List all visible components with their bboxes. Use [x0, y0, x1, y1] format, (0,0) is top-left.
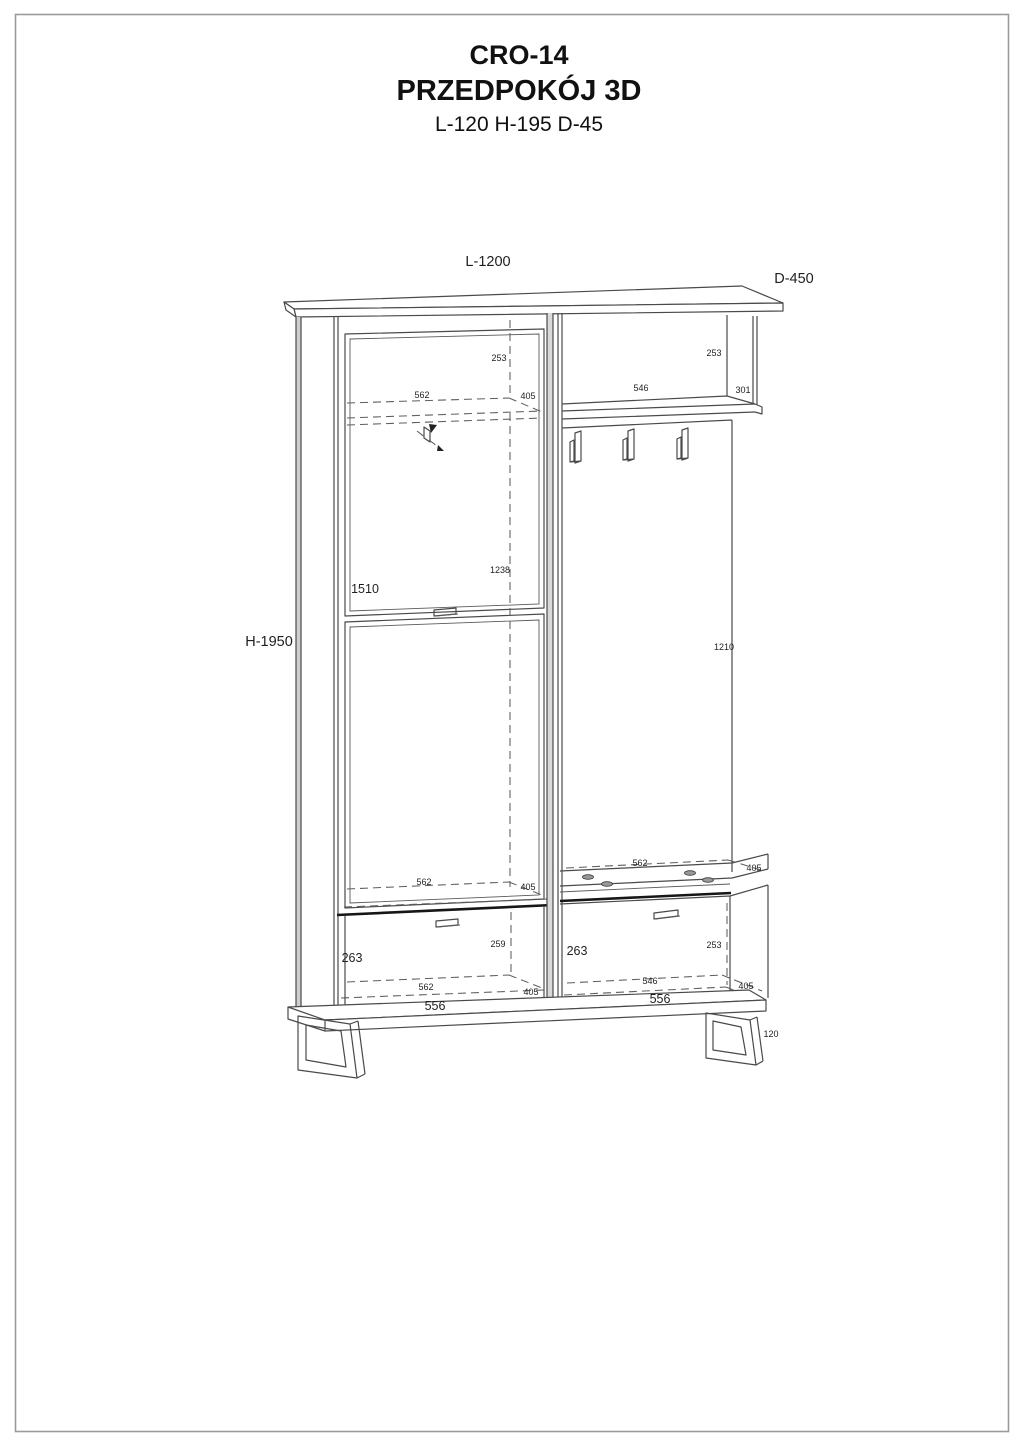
dim-panel-height: 1210	[714, 642, 734, 652]
dim-overall-length: L-1200	[465, 254, 510, 270]
catalog-page: CRO-14 PRZEDPOKÓJ 3D L-120 H-195 D-45	[0, 0, 1024, 1449]
center-divider	[547, 313, 554, 1008]
dim-base-height: 120	[763, 1029, 778, 1039]
dim-left-drawer-bottom-width: 562	[418, 982, 433, 992]
dim-left-top-offset: 253	[491, 353, 506, 363]
dim-left-floor-depth: 405	[520, 882, 535, 892]
dim-bench-inner-height: 253	[706, 940, 721, 950]
dim-shelf-box-depth: 301	[735, 385, 750, 395]
dim-bench-bottom-depth: 405	[738, 981, 753, 991]
dim-left-front-width: 556	[425, 999, 446, 1013]
dim-overall-height: H-1950	[245, 634, 293, 650]
dim-bench-top-width: 562	[632, 858, 647, 868]
dim-left-interior-height: 1238	[490, 565, 510, 575]
seat-pad-4	[703, 878, 714, 883]
dim-overall-depth: D-450	[774, 271, 814, 287]
dim-left-shelf-width: 562	[414, 390, 429, 400]
seat-pad-3	[685, 871, 696, 876]
dim-left-drawer-inner-depth: 259	[490, 939, 505, 949]
dim-shelf-box-height: 253	[706, 348, 721, 358]
product-name: PRZEDPOKÓJ 3D	[397, 73, 642, 107]
dim-left-drawer-height: 263	[342, 951, 363, 965]
dim-door-height: 1510	[351, 582, 379, 596]
dim-bench-bottom-width: 546	[642, 976, 657, 986]
dim-bench-top-depth: 405	[746, 863, 761, 873]
dim-left-floor-width: 562	[416, 877, 431, 887]
dim-bench-front-width: 556	[650, 992, 671, 1006]
product-code: CRO-14	[469, 40, 568, 70]
product-size: L-120 H-195 D-45	[435, 113, 603, 136]
page-border	[16, 15, 1009, 1432]
dim-left-drawer-bottom-depth: 405	[523, 987, 538, 997]
seat-pad-2	[602, 882, 613, 887]
dim-bench-height: 263	[567, 944, 588, 958]
dim-shelf-box-width: 546	[633, 383, 648, 393]
dim-left-shelf-depth: 405	[520, 391, 535, 401]
seat-pad-1	[583, 875, 594, 880]
